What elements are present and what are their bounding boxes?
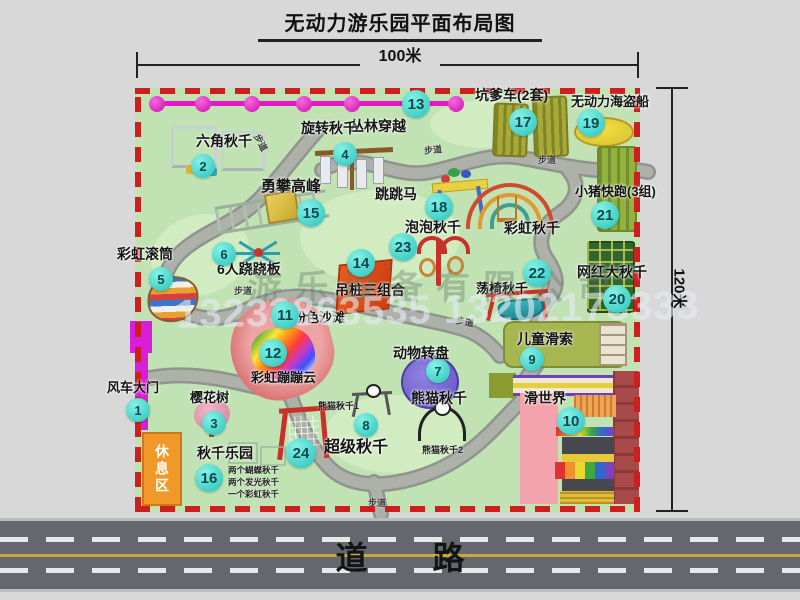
path-label: 步道 <box>234 284 252 297</box>
road: 道 路 <box>0 518 800 592</box>
attraction-label-1: 风车大门 <box>107 381 159 395</box>
dimension-tick-right <box>637 52 639 78</box>
path-label: 步道 <box>538 153 556 166</box>
attraction-label-24: 超级秋千 <box>324 440 388 457</box>
attraction-label-5: 彩虹滚筒 <box>117 247 173 262</box>
attraction-badge-16: 16 <box>195 464 223 492</box>
attraction-badge-10: 10 <box>557 407 585 435</box>
jumping-horse-figure <box>461 170 471 178</box>
slide-world-pink-zone <box>520 393 558 504</box>
slide-world-strip <box>562 454 614 462</box>
windmill-gate-top <box>130 321 152 353</box>
attraction-label-17: 坑爹车(2套) <box>475 88 548 103</box>
attraction-badge-8: 8 <box>354 413 378 437</box>
attraction-label-18: 跳跳马 <box>375 187 417 202</box>
pit-car-track <box>532 95 569 157</box>
fence-post <box>296 96 312 112</box>
slide-world-deck <box>489 373 516 398</box>
zipline-tower <box>599 323 627 366</box>
dimension-tick-left <box>136 52 138 78</box>
attraction-label-20: 网红大秋千 <box>577 265 647 280</box>
attraction-badge-20: 20 <box>603 285 631 313</box>
boundary-bottom <box>135 506 640 512</box>
dimension-tick-top <box>656 87 688 89</box>
attraction-badge-4: 4 <box>333 142 357 166</box>
panda-swing-1-label: 熊猫秋千1 <box>318 399 359 412</box>
boundary-top <box>135 88 640 94</box>
attraction-label-23: 泡泡秋千 <box>405 220 461 235</box>
slide-world-strip <box>560 491 614 504</box>
attraction-label-3: 樱花树 <box>190 391 229 405</box>
attraction-label-19: 无动力海盗船 <box>571 95 649 109</box>
swing-park-note-1: 两个蝴蝶秋千 <box>228 464 279 476</box>
dimension-height-label: 120米 <box>670 254 691 324</box>
attraction-badge-6: 6 <box>212 242 236 266</box>
slide-world-strip <box>562 437 614 454</box>
panda-swing-2-label: 熊猫秋千2 <box>422 443 463 456</box>
attraction-label-11: 粉色沙滩 <box>293 311 345 325</box>
dimension-tick-bottom <box>656 510 688 512</box>
attraction-badge-5: 5 <box>149 267 173 291</box>
rest-area-box: 休息区 <box>142 432 182 506</box>
fence-post <box>448 96 464 112</box>
swing-park-note-2: 两个发光秋千 <box>228 476 279 488</box>
attraction-badge-18: 18 <box>425 193 453 221</box>
attraction-badge-2: 2 <box>191 154 215 178</box>
bubble-swing-ring <box>419 258 436 277</box>
attraction-label-2: 六角秋千 <box>196 134 252 149</box>
attraction-badge-1: 1 <box>126 398 150 422</box>
attraction-badge-14: 14 <box>347 249 375 277</box>
attraction-label-10: 滑世界 <box>524 391 566 406</box>
attraction-badge-19: 19 <box>577 109 605 137</box>
attraction-label-9: 儿童滑索 <box>517 332 573 347</box>
attraction-badge-17: 17 <box>509 108 537 136</box>
rest-area-label: 休息区 <box>152 444 172 495</box>
park-plan-screenshot: 无动力游乐园平面布局图 100米 120米 <box>0 0 800 600</box>
attraction-label-15: 勇攀高峰 <box>261 179 321 195</box>
jumping-horse-figure <box>448 168 460 177</box>
attraction-badge-12: 12 <box>259 339 287 367</box>
swing-park-note-3: 一个彩虹秋千 <box>228 488 279 500</box>
fence-post <box>195 96 211 112</box>
swing-strap <box>356 159 367 189</box>
attraction-badge-3: 3 <box>202 411 226 435</box>
attraction-badge-9: 9 <box>520 347 544 371</box>
panda-head <box>366 384 381 398</box>
slide-world-strip <box>562 479 614 491</box>
fence-post <box>244 96 260 112</box>
page-title: 无动力游乐园平面布局图 <box>258 7 542 42</box>
swing-park-sketch <box>260 446 286 466</box>
swing-strap <box>320 156 331 184</box>
attraction-badge-11: 11 <box>271 301 299 329</box>
attraction-badge-24: 24 <box>286 438 316 468</box>
attraction-label-22: 荡椅秋千 <box>476 282 528 296</box>
slide-world-rainbow-slide <box>555 462 614 479</box>
attraction-badge-7: 7 <box>426 359 450 383</box>
fence-post <box>344 96 360 112</box>
rainbow-swing-label: 彩虹秋千 <box>504 221 560 236</box>
swing-strap <box>373 157 384 184</box>
attraction-label-16: 秋千乐园 <box>197 446 253 461</box>
attraction-label-14: 吊桩三组合 <box>335 283 405 298</box>
attraction-label-13: 丛林穿越 <box>350 119 406 134</box>
dimension-width-label: 100米 <box>360 42 440 66</box>
attraction-badge-23: 23 <box>389 233 417 261</box>
attraction-badge-21: 21 <box>591 201 619 229</box>
attraction-label-8: 熊猫秋千 <box>411 391 467 406</box>
boundary-right <box>634 88 640 512</box>
seesaw-hub <box>254 248 263 257</box>
path-label: 步道 <box>423 142 442 157</box>
attraction-badge-15: 15 <box>297 199 325 227</box>
fence-post <box>149 96 165 112</box>
attraction-label-4: 旋转秋千 <box>301 121 357 136</box>
attraction-badge-22: 22 <box>523 259 551 287</box>
attraction-label-12: 彩虹蹦蹦云 <box>251 371 316 385</box>
attraction-label-21: 小猪快跑(3组) <box>575 185 656 199</box>
bubble-swing-ring <box>447 256 464 275</box>
boundary-left <box>135 88 141 512</box>
road-label: 道 路 <box>0 533 800 579</box>
attraction-badge-13: 13 <box>402 90 430 118</box>
